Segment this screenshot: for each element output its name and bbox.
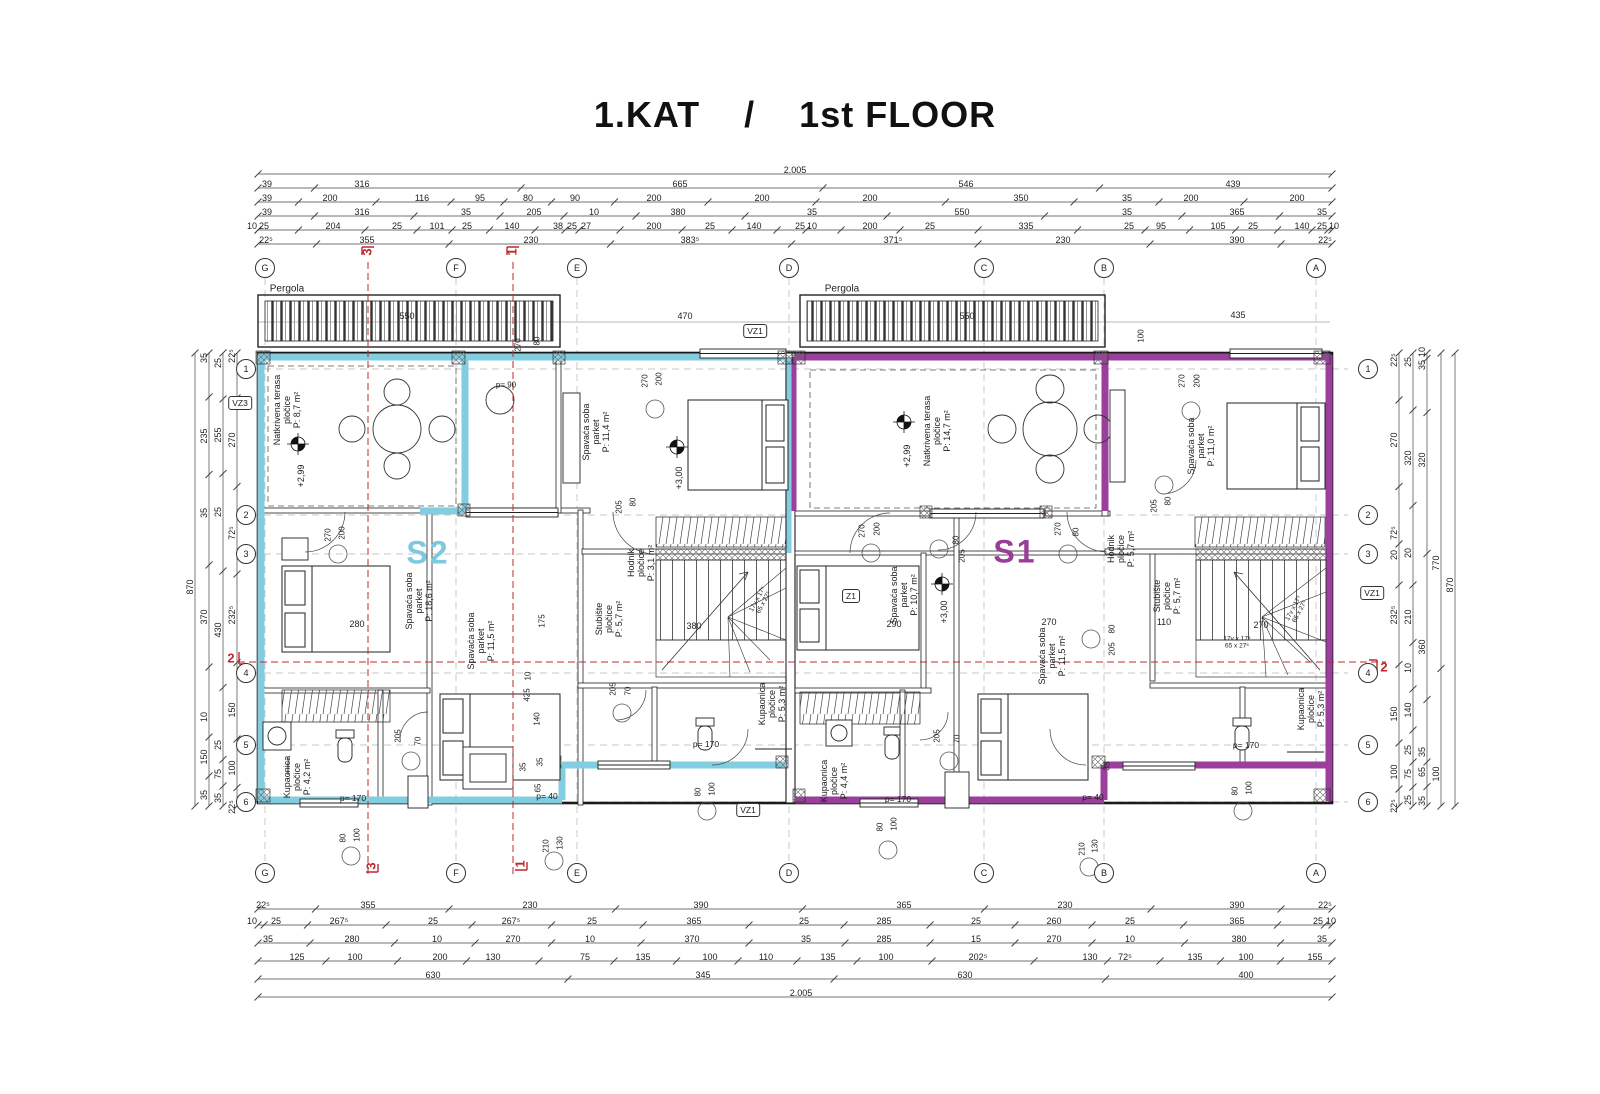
pergola <box>258 295 1105 347</box>
staircase-s2 <box>656 549 786 677</box>
floor-plan-sheet: 1.KAT / 1st FLOOR <box>0 0 1600 1094</box>
unit-label-s1: S1 <box>993 534 1036 571</box>
unit-label-s2: S2 <box>406 535 449 572</box>
staircase-s1 <box>1196 549 1326 677</box>
plan-drawing <box>0 0 1600 1094</box>
terrace-bounds <box>268 366 1096 508</box>
